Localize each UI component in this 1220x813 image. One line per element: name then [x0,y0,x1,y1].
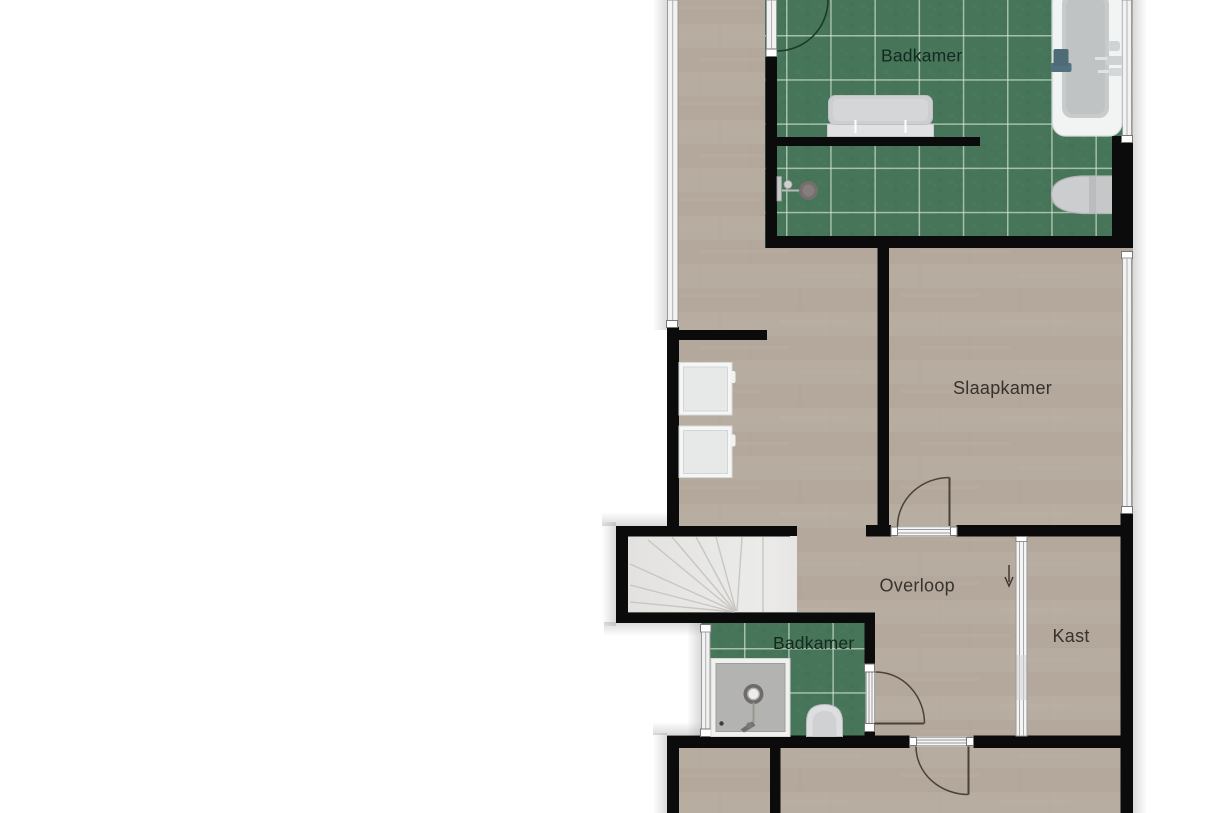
svg-text:Slaapkamer: Slaapkamer [953,378,1052,398]
svg-text:Badkamer: Badkamer [773,633,854,653]
svg-text:Overloop: Overloop [880,576,955,596]
svg-text:Badkamer: Badkamer [881,46,962,66]
svg-text:Kast: Kast [1053,626,1090,646]
